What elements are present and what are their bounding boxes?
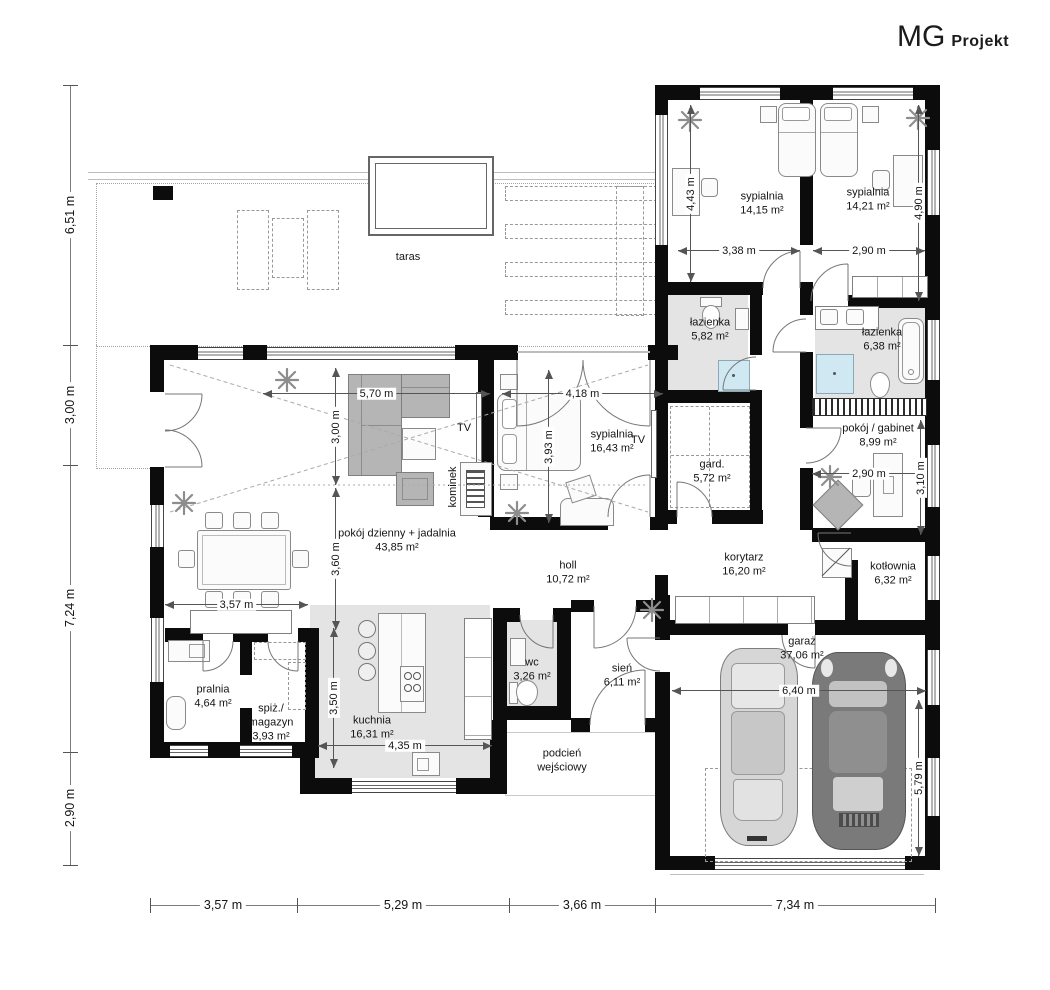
stool-icon xyxy=(358,642,376,660)
double-bed-icon xyxy=(497,393,581,471)
dim-bedroom2-height: 4,90 m xyxy=(918,105,919,301)
dim-pralnia-width: 3,57 m xyxy=(165,604,308,605)
wardrobe-shelves xyxy=(670,406,750,508)
wall-segment xyxy=(490,720,507,794)
wall-segment xyxy=(150,547,164,618)
wall-segment xyxy=(655,85,668,115)
dim-label: 7,24 m xyxy=(63,585,77,631)
chair-icon xyxy=(292,550,309,568)
wall-segment xyxy=(300,778,352,794)
dim-gabinet-height: 3,10 m xyxy=(920,420,921,535)
window xyxy=(700,87,780,100)
kominek-label: kominek xyxy=(447,467,459,508)
window xyxy=(833,87,913,100)
vanity-desk-icon xyxy=(560,498,614,526)
window xyxy=(352,781,456,793)
dim-master-door-width: 4,18 m xyxy=(502,393,663,394)
dim-tick xyxy=(935,898,936,913)
stool-icon xyxy=(358,663,376,681)
stool-icon xyxy=(358,620,376,638)
window xyxy=(198,347,243,360)
coffee-table-icon xyxy=(402,428,436,460)
wall-segment xyxy=(750,403,762,510)
room-label-kuchnia: kuchnia16,31 m² xyxy=(350,714,393,742)
shower-icon xyxy=(816,354,854,394)
room-label-wc: wc3,26 m² xyxy=(513,656,550,684)
room-label-salon: pokój dzienny + jadalnia43,85 m² xyxy=(338,527,456,555)
washer-icon xyxy=(166,696,186,730)
window xyxy=(927,650,940,705)
dim-bedroom1-height: 4,43 m xyxy=(690,105,691,282)
window xyxy=(927,150,940,215)
tv-label: TV xyxy=(631,434,645,448)
nightstand-icon xyxy=(862,106,879,123)
dim-tick xyxy=(509,898,510,913)
wall-segment xyxy=(800,352,813,428)
wall-segment xyxy=(655,282,763,295)
tv-niche xyxy=(476,392,482,469)
dim-bedroom2-width: 2,90 m xyxy=(813,250,925,251)
dim-tick xyxy=(63,865,78,866)
nightstand-icon xyxy=(500,374,518,390)
bed-icon xyxy=(820,103,858,177)
chair-icon xyxy=(261,512,279,529)
wall-segment xyxy=(493,608,507,720)
wall-segment xyxy=(243,345,267,360)
dim-tick xyxy=(63,465,78,466)
dim-salon-width: 5,70 m xyxy=(263,393,490,394)
wall-segment xyxy=(800,282,813,315)
wall-segment xyxy=(650,517,668,530)
room-label-holl: holl10,72 m² xyxy=(546,559,589,587)
kitchen-sink-icon xyxy=(412,752,440,776)
room-label-garaz: garaż37,06 m² xyxy=(780,635,823,663)
dim-label: 6,51 m xyxy=(63,192,77,238)
wall-segment xyxy=(815,620,940,635)
dining-table-icon xyxy=(197,530,291,590)
brand-mg: MG xyxy=(897,20,945,54)
dim-garage-height: 5,79 m xyxy=(918,700,919,856)
chair-icon xyxy=(261,591,279,608)
garage-apron-line xyxy=(670,874,924,875)
room-label-gabinet: pokój / gabinet8,99 m² xyxy=(842,422,914,450)
fireplace-icon xyxy=(460,462,492,516)
room-label-lazienka-1: łazienka5,82 m² xyxy=(690,316,730,344)
wall-segment xyxy=(240,642,252,675)
room-label-gard: gard.5,72 m² xyxy=(693,458,730,486)
brand-projekt: Projekt xyxy=(951,33,1009,51)
window xyxy=(927,758,940,816)
window xyxy=(240,745,292,757)
window xyxy=(170,745,208,757)
chair-icon xyxy=(233,512,251,529)
dim-tick xyxy=(63,85,78,86)
terrace-post xyxy=(153,186,173,200)
entrance-porch-slab xyxy=(505,732,670,796)
hall-cabinet xyxy=(675,596,815,624)
window xyxy=(151,505,164,547)
room-label-sien: sień6,11 m² xyxy=(604,662,640,690)
bed-icon xyxy=(778,103,816,177)
dim-tick xyxy=(655,898,656,913)
dim-kitchen-width: 4,35 m xyxy=(318,745,492,746)
window xyxy=(267,347,455,360)
nightstand-icon xyxy=(500,474,518,490)
dim-label: 7,34 m xyxy=(772,898,818,912)
wall-segment xyxy=(648,345,678,360)
ottoman-icon xyxy=(396,472,434,506)
dim-tick xyxy=(63,345,78,346)
room-label-taras: taras xyxy=(396,251,420,265)
dim-salon-height-2: 3,60 m xyxy=(335,488,336,630)
dim-tick xyxy=(150,898,151,913)
room-label-sypialnia-1: sypialnia14,15 m² xyxy=(740,190,783,218)
wall-segment xyxy=(305,628,319,758)
wall-segment xyxy=(493,706,571,720)
skylight xyxy=(368,156,494,236)
car-light-icon xyxy=(720,648,798,846)
dim-label: 3,57 m xyxy=(200,898,246,912)
dim-master-height: 3,93 m xyxy=(548,370,549,523)
wall-segment xyxy=(571,718,590,732)
cooktop-icon xyxy=(400,666,424,702)
room-label-lazienka-2: łazienka6,38 m² xyxy=(862,326,902,354)
chair-icon xyxy=(205,512,223,529)
room-label-spiz: spiż./magazyn3,93 m² xyxy=(249,702,294,743)
pantry-shelf xyxy=(254,642,306,660)
floor-hatch-icon xyxy=(822,548,852,578)
dim-garage-width: 6,40 m xyxy=(672,690,926,691)
terrace-boundary xyxy=(96,468,150,469)
window xyxy=(927,556,940,600)
terrace-table-icon xyxy=(272,218,304,278)
sink-icon xyxy=(735,308,749,330)
pergola-post-strip xyxy=(616,186,644,316)
dim-bedroom1-width: 3,38 m xyxy=(678,250,800,251)
dim-label: 2,90 m xyxy=(63,785,77,831)
room-label-podcien: podcieńwejściowy xyxy=(537,747,587,775)
window xyxy=(927,320,940,380)
room-label-kotlownia: kotłownia6,32 m² xyxy=(870,560,916,588)
wall-segment xyxy=(571,600,594,612)
wall-segment xyxy=(150,345,164,392)
door-opening-line xyxy=(517,351,650,353)
room-label-sypialnia-2: sypialnia14,21 m² xyxy=(846,186,889,214)
sink-icon xyxy=(846,309,864,325)
dim-label: 5,29 m xyxy=(380,898,426,912)
tv-niche xyxy=(651,410,657,478)
dim-tick xyxy=(63,752,78,753)
dim-kitchen-height: 3,50 m xyxy=(333,628,334,768)
wall-segment xyxy=(493,608,520,622)
room-label-korytarz: korytarz16,20 m² xyxy=(722,551,765,579)
wardrobe-hatch xyxy=(812,398,927,416)
dim-label: 3,00 m xyxy=(63,382,77,428)
terrace-lounger-icon xyxy=(307,210,339,290)
wall-segment xyxy=(655,595,670,640)
wall-segment xyxy=(655,672,670,856)
wall-segment xyxy=(557,608,571,720)
terrace-lounger-icon xyxy=(237,210,269,290)
tv-label: TV xyxy=(457,422,471,436)
wall-segment xyxy=(750,295,762,355)
chair-icon xyxy=(701,178,718,197)
wall-segment xyxy=(455,345,505,360)
sideboard-icon xyxy=(190,610,292,634)
wall-segment xyxy=(150,467,164,505)
wall-segment xyxy=(150,682,164,742)
sink-icon xyxy=(820,309,838,325)
kitchen-counter xyxy=(464,618,492,740)
terrace-boundary xyxy=(96,345,97,469)
wall-segment xyxy=(712,510,763,524)
window xyxy=(927,445,940,507)
car-dark-icon xyxy=(812,652,906,850)
dim-tick xyxy=(297,898,298,913)
laundry-sink-icon xyxy=(168,640,210,662)
dim-label: 3,66 m xyxy=(559,898,605,912)
window xyxy=(151,618,164,682)
room-label-sypialnia-3: sypialnia16,43 m² xyxy=(590,428,633,456)
dim-salon-height-1: 3,00 m xyxy=(335,368,336,485)
nightstand-icon xyxy=(760,106,777,123)
desk-icon xyxy=(873,453,903,517)
dim-gabinet-width: 2,90 m xyxy=(812,473,926,474)
floor-plan-canvas: MG Projekt xyxy=(0,0,1050,990)
room-label-pralnia: pralnia4,64 m² xyxy=(194,683,231,711)
chair-icon xyxy=(178,550,195,568)
window xyxy=(655,115,668,245)
shower-icon xyxy=(718,360,750,392)
brand-logo: MG Projekt xyxy=(897,20,1009,54)
